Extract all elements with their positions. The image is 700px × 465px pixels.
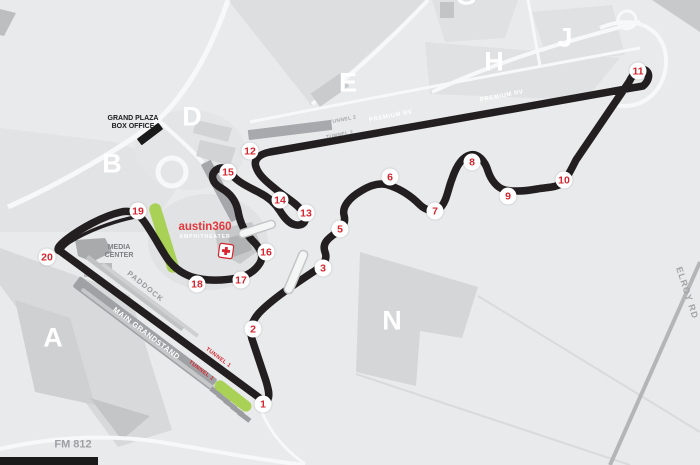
highway-bar	[0, 457, 98, 465]
turn-marker-17: 17	[233, 272, 250, 289]
turn-marker-18: 18	[189, 276, 206, 293]
grand-plaza-line1: GRAND PLAZA	[108, 115, 159, 122]
turn-marker-13: 13	[298, 205, 315, 222]
area-letter-g: G	[455, 0, 476, 12]
media-center-line2: CENTER	[105, 252, 134, 259]
area-letter-d: D	[182, 102, 202, 133]
turn-marker-7: 7	[427, 203, 444, 220]
media-center-line1: MEDIA	[108, 244, 131, 251]
amphitheater-label: AMPHITHEATER	[179, 235, 230, 241]
turn-marker-10: 10	[556, 172, 573, 189]
turn-marker-16: 16	[258, 244, 275, 261]
turn-marker-19: 19	[130, 203, 147, 220]
turn-marker-3: 3	[315, 260, 332, 277]
turn-marker-15: 15	[220, 164, 237, 181]
cota-track-map: GRAND PLAZA BOX OFFICE MEDIA CENTER PADD…	[0, 0, 700, 465]
media-center-label: MEDIA CENTER	[105, 244, 134, 261]
turn-marker-14: 14	[272, 192, 289, 209]
area-letter-a: A	[43, 323, 63, 354]
fm-812-label: FM 812	[54, 439, 91, 452]
turn-marker-1: 1	[255, 396, 272, 413]
turn-marker-9: 9	[500, 188, 517, 205]
turn-marker-5: 5	[332, 221, 349, 238]
lot-g-building	[440, 2, 454, 18]
turn-marker-20: 20	[39, 249, 56, 266]
turn-marker-8: 8	[464, 154, 481, 171]
area-letter-b: B	[102, 149, 122, 180]
area-letter-j: J	[557, 23, 572, 54]
turn-marker-6: 6	[382, 169, 399, 186]
area-letter-n: N	[382, 306, 402, 337]
area-letter-h: H	[484, 47, 504, 78]
medical-cross-icon	[218, 243, 234, 259]
austin360-label: austin360	[178, 221, 231, 235]
grand-plaza-line2: BOX OFFICE	[112, 123, 155, 130]
turn-marker-2: 2	[245, 321, 262, 338]
turn-marker-12: 12	[242, 143, 259, 160]
grand-plaza-box-office-label: GRAND PLAZA BOX OFFICE	[108, 115, 159, 132]
area-letter-e: E	[339, 68, 357, 99]
turn-marker-11: 11	[630, 63, 647, 80]
